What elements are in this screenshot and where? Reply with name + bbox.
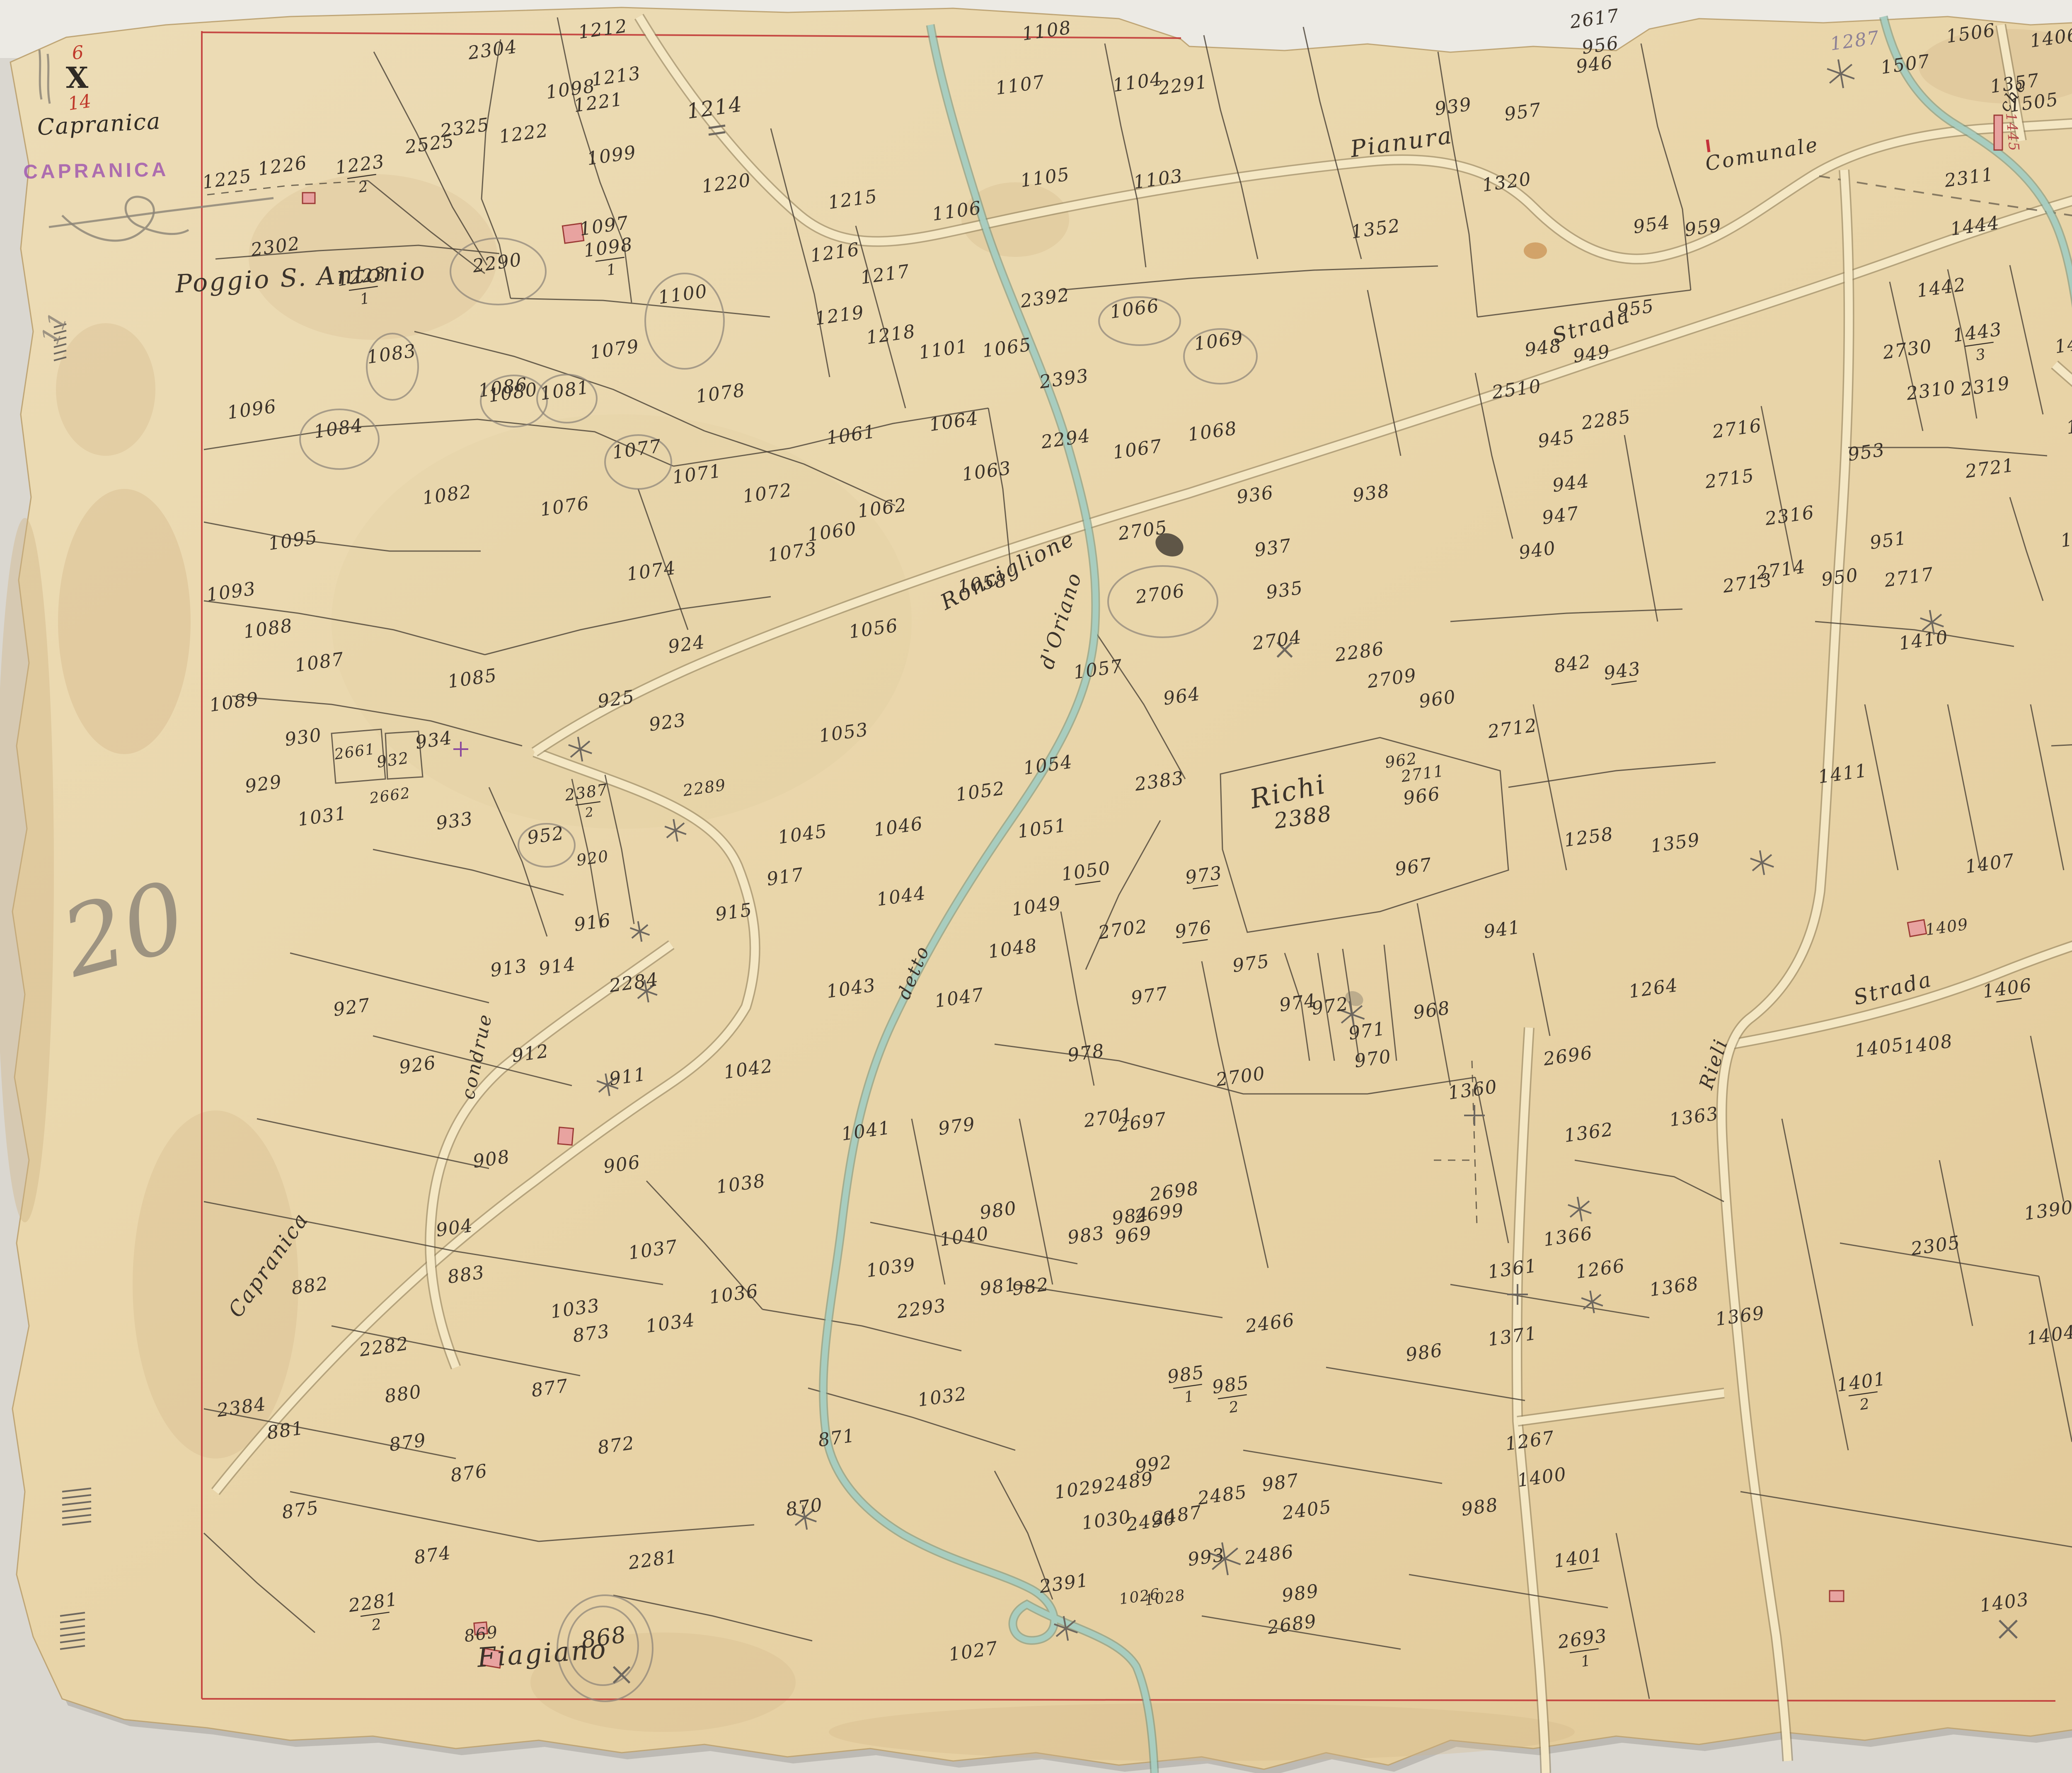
building-icon — [303, 193, 315, 203]
parcel-number: 976 — [1174, 917, 1214, 944]
parcel-number: 973 — [1184, 862, 1224, 890]
parcel-number: 1445 — [2002, 112, 2022, 152]
map-number: 14 — [67, 90, 93, 114]
svg-text:1445: 1445 — [2002, 112, 2022, 152]
building-icon — [1830, 1591, 1844, 1601]
building-icon — [558, 1127, 573, 1145]
building-icon — [1907, 920, 1926, 936]
building-icon — [1994, 115, 2002, 150]
redtick-mark — [1707, 140, 1709, 152]
sheet-roman-numeral: X — [66, 60, 89, 95]
map-canvas: 6 X 14 Capranica CAPRANICA 2011 12251226… — [0, 0, 2072, 1773]
cadastral-map-page: 6 X 14 Capranica CAPRANICA 2011 12251226… — [0, 0, 2072, 1773]
parcel-number: 943 — [1602, 658, 1643, 685]
territory-stamp: CAPRANICA — [23, 159, 169, 183]
